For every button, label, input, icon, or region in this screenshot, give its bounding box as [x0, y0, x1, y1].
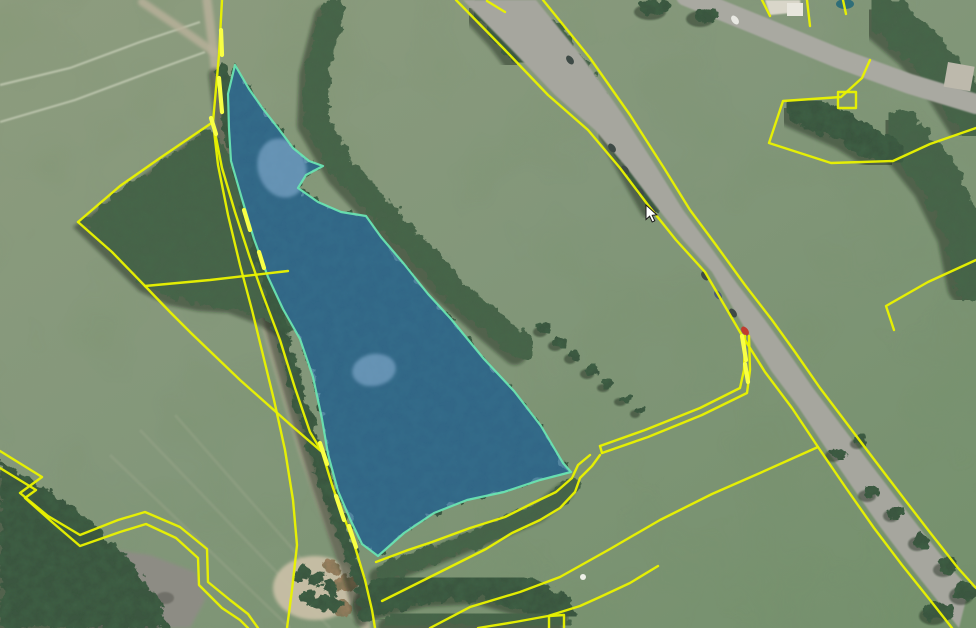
- mouse-cursor-icon: [0, 0, 976, 628]
- map-viewport[interactable]: [0, 0, 976, 628]
